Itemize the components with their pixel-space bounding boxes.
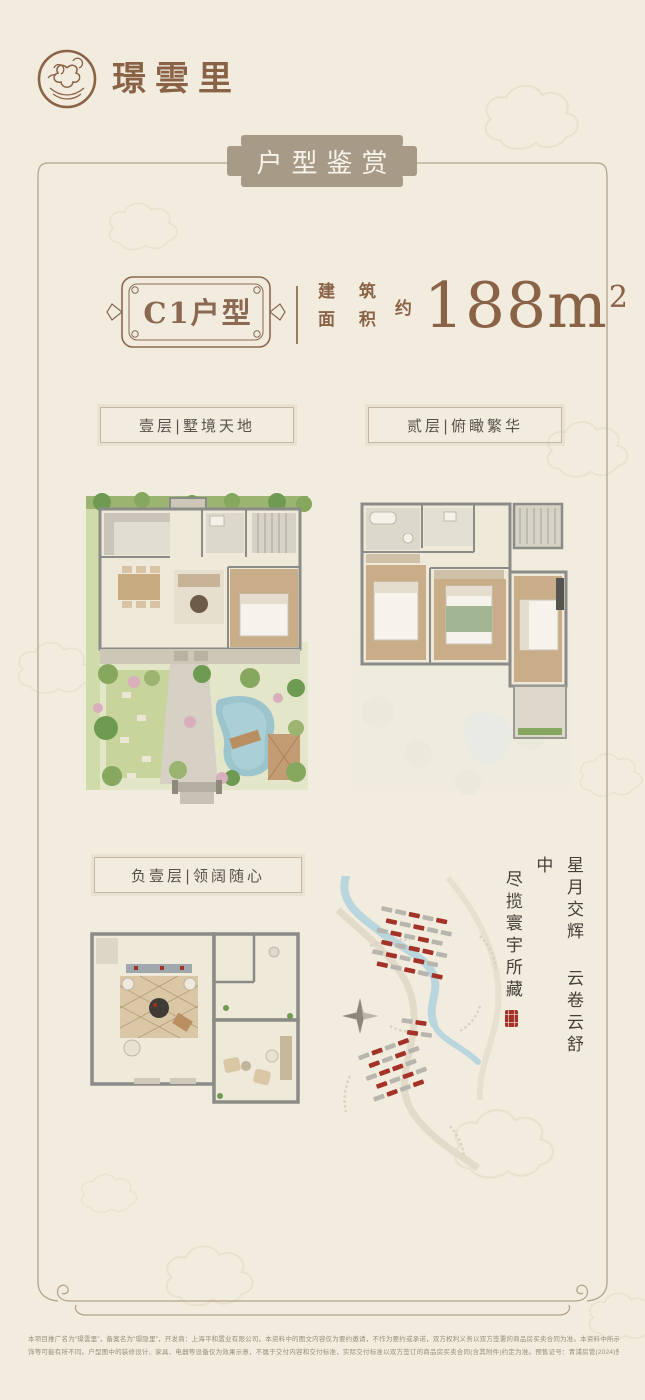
- brand-name: 璟雲里: [112, 62, 241, 96]
- disclaimer-line-1: 本项目推广名为“璟雲里”，备案名为“璟隐里”，开发商：上海平和置业有限公司。本资…: [28, 1333, 619, 1346]
- brand-logo-icon: [36, 48, 98, 110]
- label-basement-floor: 负壹层|领阔随心: [94, 857, 302, 893]
- seal-stamp: [505, 1010, 518, 1027]
- area-approx: 约: [395, 294, 412, 319]
- compass-icon: [342, 998, 378, 1034]
- brand-header: 璟雲里: [36, 48, 241, 110]
- building-cluster-lower: [358, 1035, 431, 1101]
- area-block: 建 筑 面 积 约 188m2: [318, 278, 628, 335]
- poem-column-2: 尽揽寰宇所藏: [496, 856, 527, 1076]
- building-cluster-upper: [370, 906, 455, 980]
- floorplan-first-floor: [82, 482, 312, 808]
- unit-name: C1户型: [138, 272, 258, 350]
- unit-header: C1户型 建 筑 面 积 约 188m2: [0, 272, 645, 362]
- label-second-floor: 贰层|俯瞰繁华: [368, 407, 562, 443]
- header-divider: [296, 286, 298, 344]
- area-label: 建 筑 面 积: [318, 278, 385, 334]
- section-banner: 户型鉴赏: [227, 135, 417, 187]
- banner-title: 户型鉴赏: [227, 135, 417, 187]
- poem-vertical-text: 星月交辉 云卷云舒中 尽揽寰宇所藏: [496, 856, 588, 1076]
- river: [344, 876, 435, 1024]
- poster-page: 璟雲里 户型鉴赏 C1户型: [0, 0, 645, 1400]
- disclaimer: 本项目推广名为“璟雲里”，备案名为“璟隐里”，开发商：上海平和置业有限公司。本资…: [28, 1333, 619, 1360]
- floorplan-basement: [76, 920, 314, 1118]
- disclaimer-line-2: 饰等可能有所不同。户型图中的装修设计、家具、电器等设备仅为效果示意，不属于交付内…: [28, 1346, 619, 1359]
- label-first-floor: 壹层|墅境天地: [100, 407, 294, 443]
- floorplan-second-floor: [348, 482, 578, 808]
- area-value: 188m2: [424, 278, 628, 335]
- poem-column-1: 星月交辉 云卷云舒中: [527, 856, 588, 1076]
